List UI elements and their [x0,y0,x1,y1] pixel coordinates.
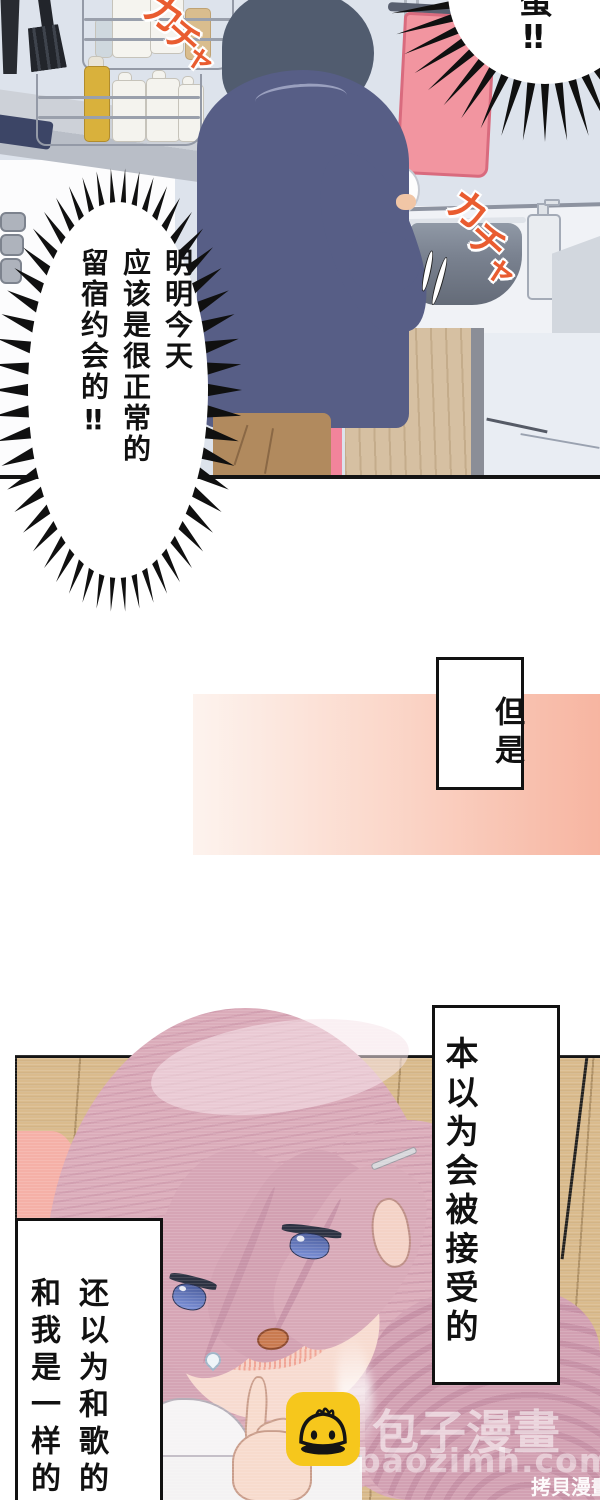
boy-hand [396,194,416,210]
bubble-text-column: 留宿约会的‼ [72,248,114,548]
manga-page: カ チ ャ カ チ ャ 蛋‼ 明明今天 应该是很正常的 留宿约会的‼ 但是 [0,0,600,1500]
floor-right [484,333,600,478]
caption-box-right: 本以为会被接受的 [432,1005,560,1385]
cabinet-side-panel [471,328,484,478]
shout-bubble-main-text: 明明今天 应该是很正常的 留宿约会的‼ [48,248,198,548]
rack-rail [38,116,200,119]
slotted-turner-icon [25,24,67,73]
caption-left-column: 还以为和歌的 [66,1277,114,1499]
caption-danshi-text: 但是 [439,660,521,787]
bubble-text-column: 明明今天 [156,248,198,548]
pink-gradient-band [193,694,600,855]
shout-bubble-top-text: 蛋‼ [506,0,550,94]
wire-rack-lower [36,74,202,146]
caption-right-text: 本以为会被接受的 [435,1008,525,1348]
caption-box-danshi: 但是 [436,657,524,790]
kitchen-utensil [0,0,22,74]
shout-bubble-top [395,0,600,185]
caption-left-column: 和我是一样的 [18,1277,66,1499]
caption-box-left: 还以为和歌的 和我是一样的 [15,1218,163,1500]
baozi-mascot-icon [286,1392,360,1466]
soap-pump-nozzle [544,199,560,206]
watermark-corner-credit: 拷貝漫畫網 [531,1471,600,1500]
wall-corner-line [561,1057,589,1260]
bubble-text-column: 应该是很正常的 [114,248,156,548]
rack-rail [38,96,200,99]
caption-left-text: 还以为和歌的 和我是一样的 [18,1221,134,1499]
